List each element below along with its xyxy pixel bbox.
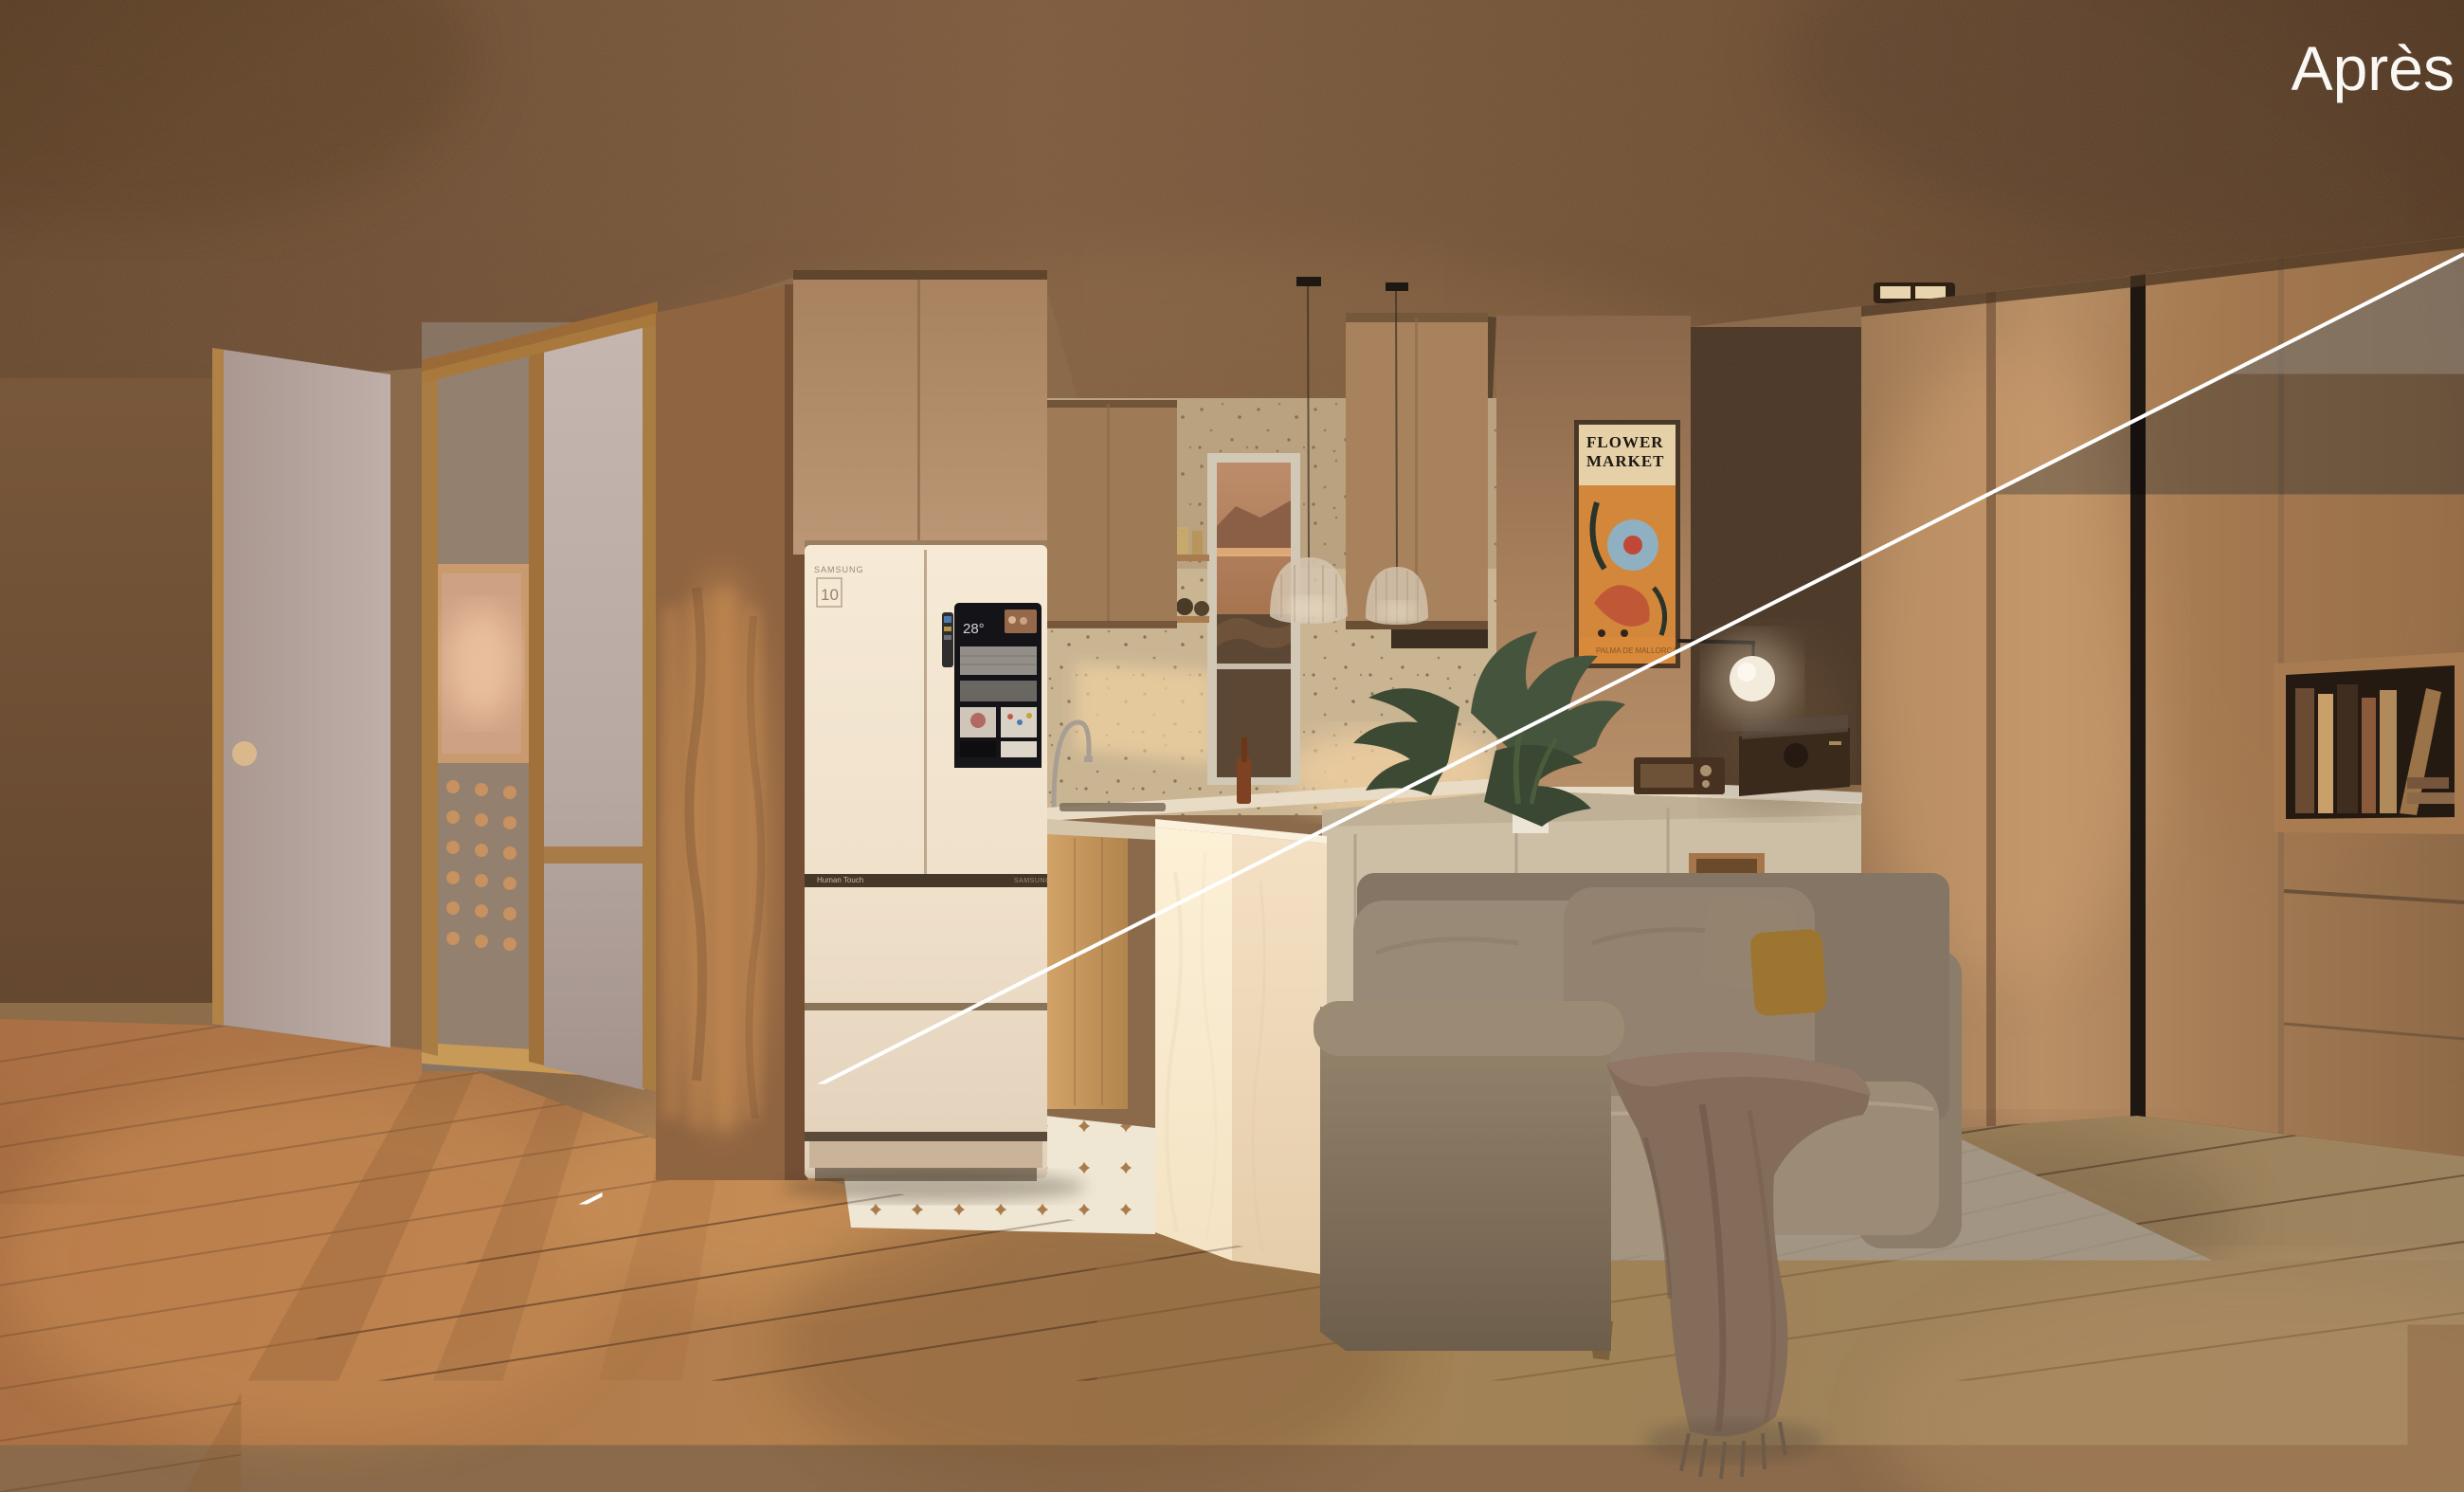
- svg-text:Après: Après: [2292, 33, 2455, 103]
- svg-text:Avant: Avant: [2286, 1397, 2440, 1465]
